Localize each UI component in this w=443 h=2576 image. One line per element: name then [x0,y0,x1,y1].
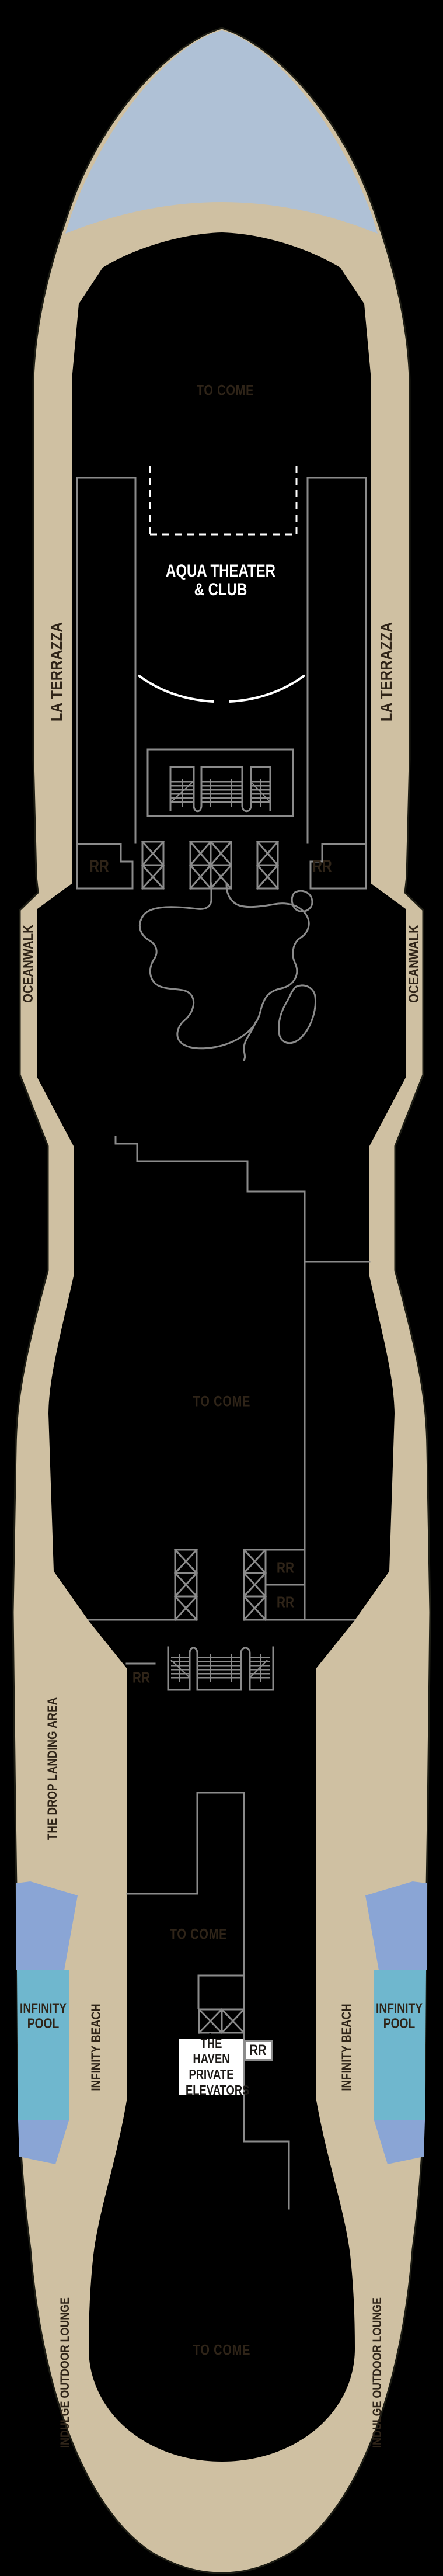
haven-private-elevators-label: THE HAVEN PRIVATE ELEVATORS [179,2039,243,2095]
aqua-theater-line2: & CLUB [166,581,275,599]
aqua-theater-label: AQUA THEATER & CLUB [166,562,275,599]
to-come-label-aft: TO COME [170,1926,228,1943]
indulge-lounge-label-starboard: INDULGE OUTDOOR LOUNGE [371,2297,385,2448]
oceanwalk-label-port: OCEANWALK [20,925,37,1003]
drop-landing-area-label: THE DROP LANDING AREA [45,1697,60,1840]
to-come-label-forward: TO COME [197,383,254,400]
to-come-label-midship: TO COME [193,1394,251,1411]
restroom-label-forward-port: RR [89,857,109,877]
la-terrazza-label-port: LA TERRAZZA [47,622,66,721]
restroom-label-mid-starboard-1: RR [277,1559,294,1577]
restroom-label-forward-starboard: RR [312,857,332,877]
deck-plan-canvas: TO COME AQUA THEATER & CLUB LA TERRAZZA … [0,0,443,2576]
forward-elevator-bank [142,842,278,888]
infinity-pool-right [374,1970,426,2120]
indulge-lounge-label-port: INDULGE OUTDOOR LOUNGE [58,2297,72,2448]
infinity-pool-label-starboard: INFINITY POOL [376,2001,423,2032]
aqua-theater-line1: AQUA THEATER [166,562,275,581]
restroom-label-haven: RR [244,2040,273,2061]
la-terrazza-label-starboard: LA TERRAZZA [377,622,396,721]
infinity-pool-label-port: INFINITY POOL [20,2001,67,2032]
restroom-label-mid-port: RR [132,1669,150,1687]
oceanwalk-label-starboard: OCEANWALK [406,925,423,1003]
infinity-beach-label-starboard: INFINITY BEACH [339,2004,354,2091]
to-come-label-stern: TO COME [193,2342,251,2359]
infinity-beach-label-port: INFINITY BEACH [89,2004,104,2091]
hull-silhouette [13,28,430,2573]
infinity-pool-left [17,1970,69,2120]
restroom-label-mid-starboard-2: RR [277,1593,294,1612]
